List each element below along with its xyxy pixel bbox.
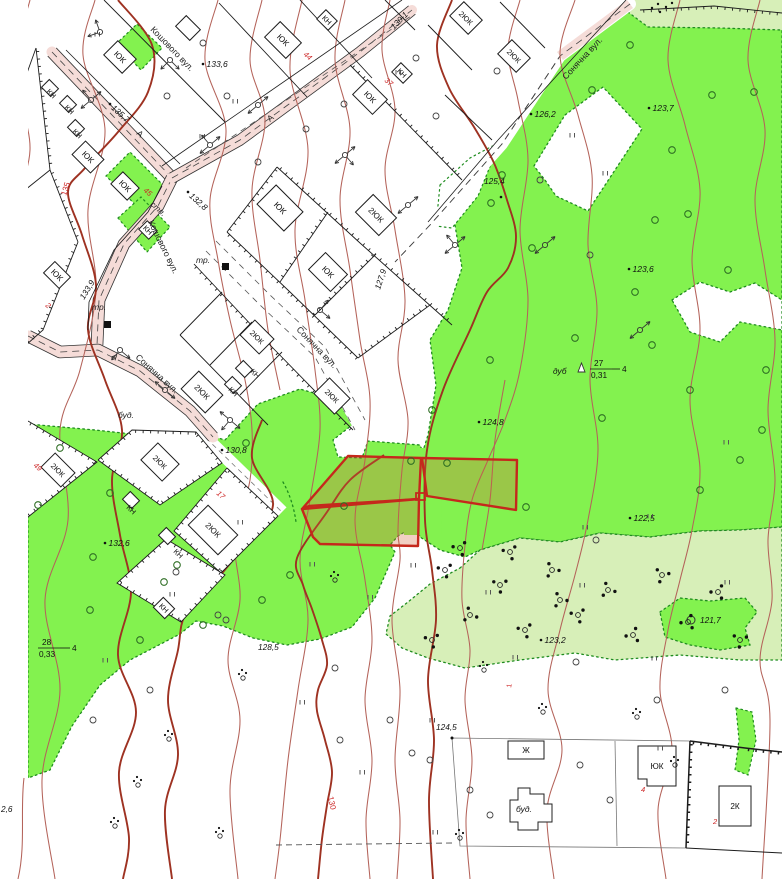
svg-text:ЮК: ЮК — [650, 762, 663, 771]
svg-text:133,6: 133,6 — [207, 59, 229, 69]
svg-text:27: 27 — [594, 358, 604, 368]
svg-text:128,5: 128,5 — [258, 642, 279, 652]
svg-text:4: 4 — [622, 364, 627, 374]
svg-text:124,8: 124,8 — [483, 417, 505, 427]
svg-text:тр.: тр. — [196, 255, 210, 265]
svg-text:тр.: тр. — [92, 302, 106, 312]
svg-text:125,4: 125,4 — [484, 176, 505, 186]
svg-text:123,7: 123,7 — [653, 103, 675, 113]
svg-text:дуб: дуб — [553, 366, 567, 376]
svg-text:0,33: 0,33 — [39, 649, 56, 659]
svg-text:126,2: 126,2 — [535, 109, 557, 119]
svg-text:2: 2 — [712, 817, 718, 826]
svg-text:123,6: 123,6 — [633, 264, 655, 274]
svg-text:буд.: буд. — [516, 804, 532, 814]
svg-text:2,6: 2,6 — [0, 804, 13, 814]
svg-text:28: 28 — [42, 637, 52, 647]
svg-text:4: 4 — [641, 785, 645, 794]
svg-text:Ж: Ж — [522, 746, 530, 755]
svg-text:121,7: 121,7 — [700, 615, 721, 625]
svg-text:123,2: 123,2 — [545, 635, 567, 645]
svg-text:4: 4 — [72, 643, 77, 653]
svg-text:122,5: 122,5 — [634, 513, 656, 523]
svg-text:130,8: 130,8 — [226, 445, 248, 455]
svg-text:2К: 2К — [730, 802, 740, 811]
svg-text:0,31: 0,31 — [591, 370, 608, 380]
svg-text:буд.: буд. — [118, 410, 134, 420]
svg-text:124,5: 124,5 — [436, 722, 457, 732]
svg-text:132,6: 132,6 — [109, 538, 131, 548]
